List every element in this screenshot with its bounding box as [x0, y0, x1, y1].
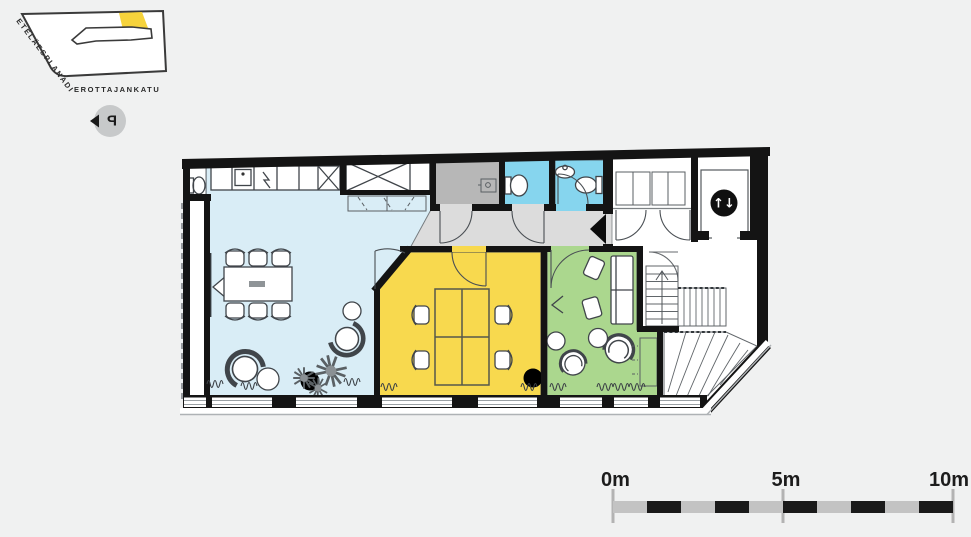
parking-letter: P — [107, 113, 117, 130]
wardrobe-crossed — [346, 162, 430, 191]
elevator-arrows: ↑↓ — [713, 197, 735, 212]
parking-arrow-icon — [90, 115, 99, 128]
side-table — [257, 368, 279, 390]
site-map: ETELÄESPLANADI EROTTAJANKATU P — [14, 11, 166, 137]
side-table — [343, 302, 361, 320]
scale-label-10m: 10m — [929, 469, 969, 491]
room-storage — [435, 160, 500, 206]
dining-table-group — [224, 249, 292, 320]
side-table — [547, 332, 565, 350]
scale-label-0m: 0m — [601, 469, 630, 491]
elevator: ↑↓ — [697, 170, 752, 240]
scale-label-5m: 5m — [772, 469, 801, 491]
parking-icon: P — [90, 105, 126, 137]
scale-segments — [613, 501, 953, 513]
corridor — [408, 208, 612, 252]
table-tray — [249, 281, 265, 287]
column — [524, 369, 543, 388]
toilet-icon — [505, 175, 528, 196]
floorplan-page: ETELÄESPLANADI EROTTAJANKATU P — [0, 0, 971, 537]
toilet-icon — [576, 177, 603, 194]
street-label-erottajankatu: EROTTAJANKATU — [74, 85, 160, 94]
floor-plan: ↑↓ — [180, 147, 771, 415]
scale-bar: 0m 5m 10m — [601, 469, 969, 523]
room-office — [377, 252, 541, 400]
side-table — [589, 329, 608, 348]
